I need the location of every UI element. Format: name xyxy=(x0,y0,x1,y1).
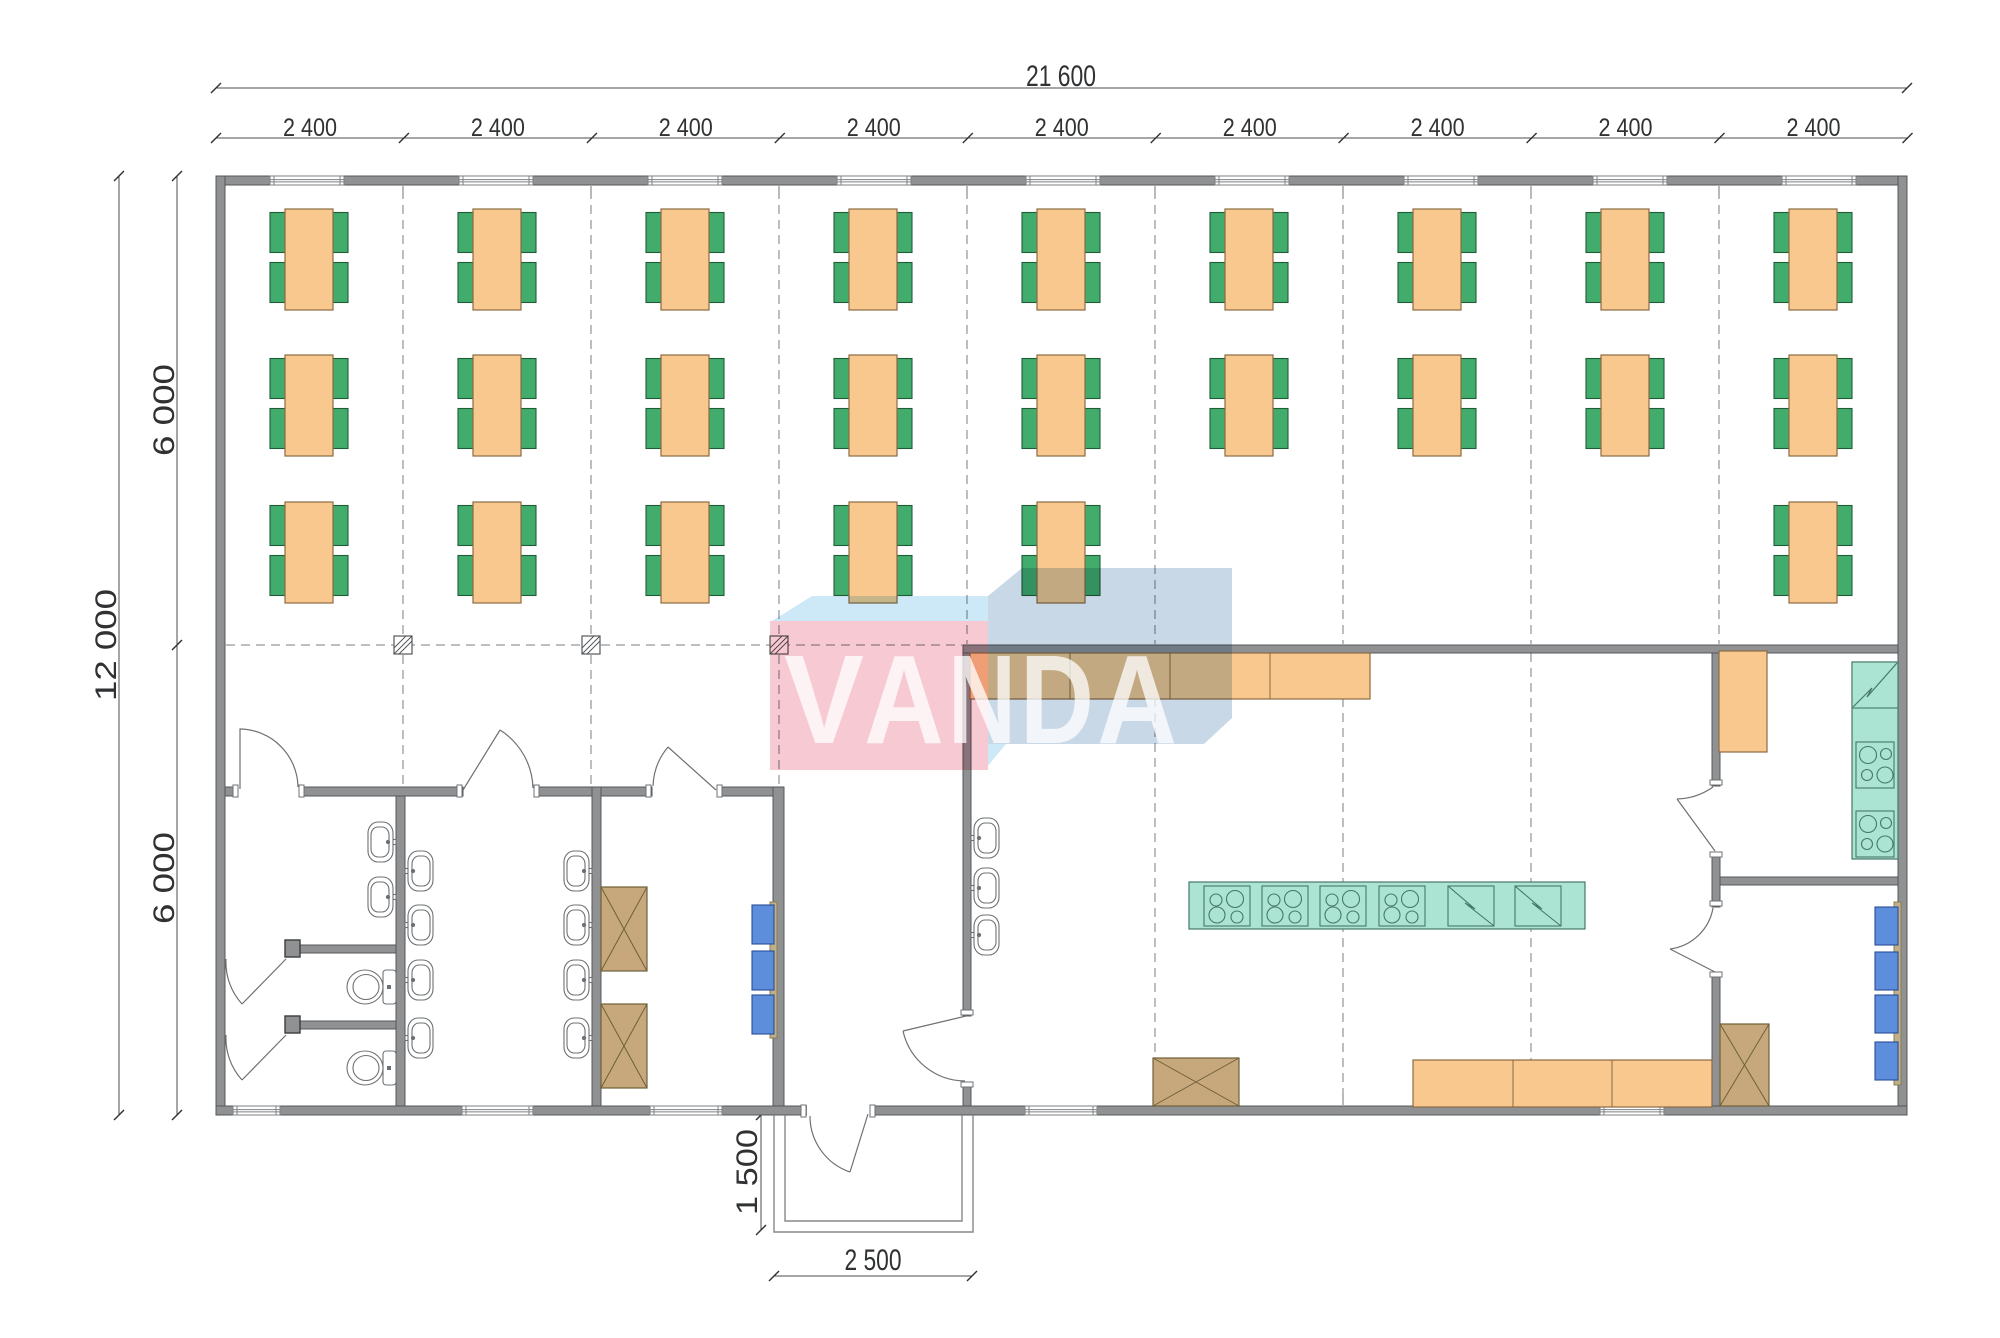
svg-text:2 400: 2 400 xyxy=(1787,114,1841,142)
svg-text:21 600: 21 600 xyxy=(1026,60,1096,93)
svg-text:V: V xyxy=(784,629,864,770)
svg-text:1 500: 1 500 xyxy=(731,1129,764,1215)
svg-text:2 400: 2 400 xyxy=(471,114,525,142)
svg-text:2 400: 2 400 xyxy=(1223,114,1277,142)
svg-text:6 000: 6 000 xyxy=(148,364,181,456)
svg-text:2 400: 2 400 xyxy=(659,114,713,142)
svg-text:2 400: 2 400 xyxy=(283,114,337,142)
svg-text:D: D xyxy=(1020,629,1094,770)
svg-text:2 400: 2 400 xyxy=(1599,114,1653,142)
svg-text:12 000: 12 000 xyxy=(90,589,123,701)
svg-text:N: N xyxy=(948,629,1016,770)
svg-text:2 400: 2 400 xyxy=(1035,114,1089,142)
svg-text:A: A xyxy=(864,629,944,770)
svg-text:2 400: 2 400 xyxy=(1411,114,1465,142)
svg-text:6 000: 6 000 xyxy=(148,832,181,924)
svg-text:2 500: 2 500 xyxy=(845,1244,902,1277)
svg-text:2 400: 2 400 xyxy=(847,114,901,142)
svg-text:A: A xyxy=(1097,629,1177,770)
